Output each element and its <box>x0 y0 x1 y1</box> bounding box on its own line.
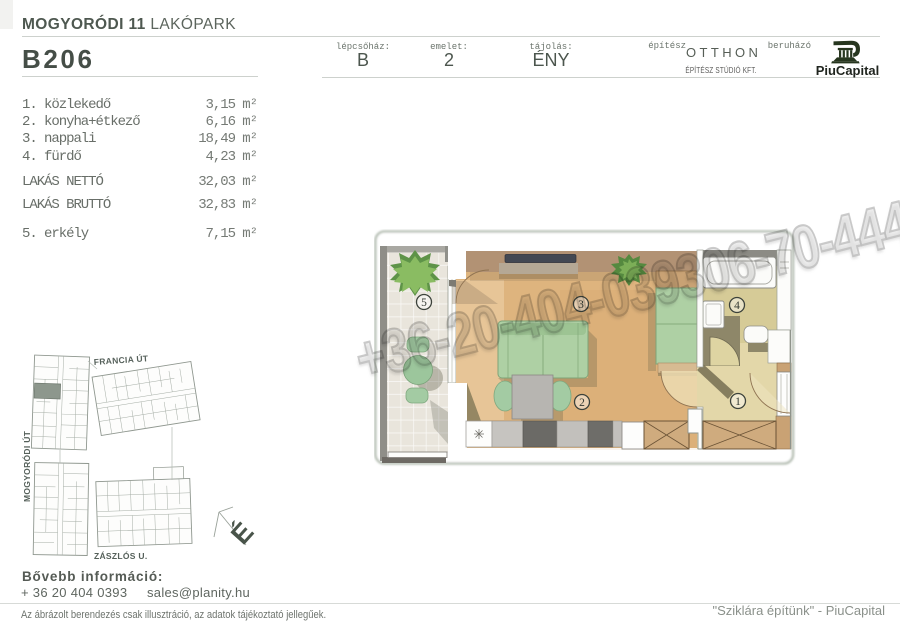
svg-text:1: 1 <box>735 396 741 408</box>
svg-text:5: 5 <box>421 297 427 309</box>
svg-text:2: 2 <box>579 397 585 409</box>
svg-text:ZÁSZLÓS U.: ZÁSZLÓS U. <box>94 550 148 561</box>
svg-text:FRANCIA ÚT: FRANCIA ÚT <box>93 352 149 367</box>
svg-text:3: 3 <box>578 299 584 311</box>
svg-text:4: 4 <box>734 300 740 312</box>
svg-text:MOGYORÓDI ÚT: MOGYORÓDI ÚT <box>21 430 32 502</box>
svg-text:É: É <box>224 516 259 550</box>
